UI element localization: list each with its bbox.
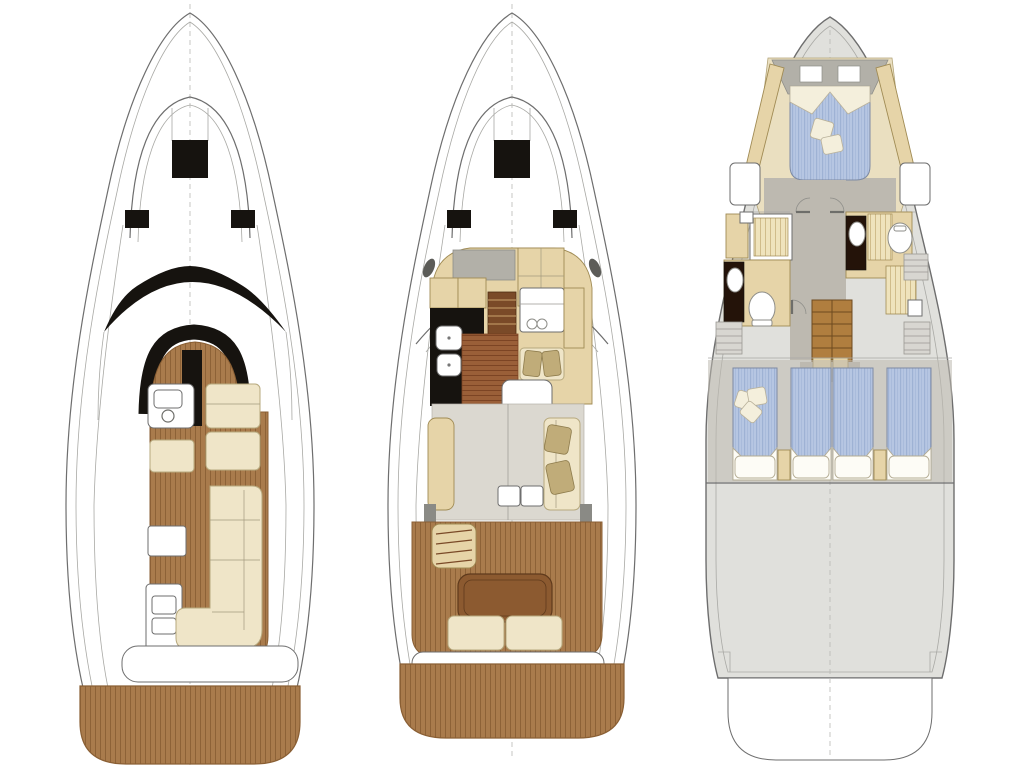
port-head [724, 260, 790, 326]
swim-platform [80, 686, 300, 764]
single-berth [733, 368, 777, 480]
deck-flybridge [66, 4, 314, 766]
single-berth [791, 368, 831, 480]
pillow [542, 350, 562, 377]
salon-sofa [544, 418, 580, 510]
cockpit-steps [432, 524, 476, 568]
windshield-deck-panel [453, 250, 515, 280]
footboard [735, 456, 775, 478]
sink-basin [727, 268, 743, 292]
port-shower [726, 212, 792, 260]
vip-bench [900, 163, 930, 205]
deck-main [388, 4, 636, 760]
single-berth [887, 368, 931, 480]
door-post [424, 504, 436, 524]
footboard [889, 456, 929, 478]
galley-cabinet [430, 278, 458, 308]
sink [152, 596, 176, 614]
hardtop-side-line [286, 332, 292, 420]
single-berth [833, 368, 873, 480]
sink-basin [849, 222, 865, 246]
companionway-steps [488, 292, 516, 334]
galley-cabinet [458, 278, 486, 308]
deck-plan-drawing [0, 0, 1024, 768]
windscreen-band [104, 266, 286, 332]
staircase [812, 300, 852, 362]
door-post [580, 504, 592, 524]
pillow [821, 134, 844, 155]
aft-hatch [122, 646, 298, 682]
bow-window [800, 66, 822, 82]
footboard [835, 456, 871, 478]
cockpit-table [458, 574, 552, 622]
co-pilot-seat [206, 384, 260, 428]
salon-table [521, 486, 543, 506]
companion-bench [150, 440, 194, 472]
shower-floor [754, 218, 788, 256]
co-pilot-seat-aft [206, 432, 260, 470]
twin-cabins [708, 360, 952, 482]
deck-lower [706, 17, 954, 760]
salon-sideboard [428, 418, 454, 510]
toilet [749, 292, 775, 324]
yacht-floorplan-canvas [0, 0, 1024, 768]
salon-table [498, 486, 520, 506]
galley-sink-counter [520, 288, 564, 332]
pillow [522, 350, 542, 377]
vip-bench [730, 163, 760, 205]
pillow [544, 424, 572, 455]
swim-platform [400, 664, 624, 738]
nightstand [778, 450, 790, 480]
helm-seat [148, 384, 194, 428]
nightstand [874, 450, 886, 480]
side-cabinet [564, 288, 584, 348]
bow-window [838, 66, 860, 82]
footboard [793, 456, 829, 478]
wet-bar-top [148, 526, 186, 556]
corner-sink [740, 212, 753, 223]
corner-sink [908, 300, 922, 316]
